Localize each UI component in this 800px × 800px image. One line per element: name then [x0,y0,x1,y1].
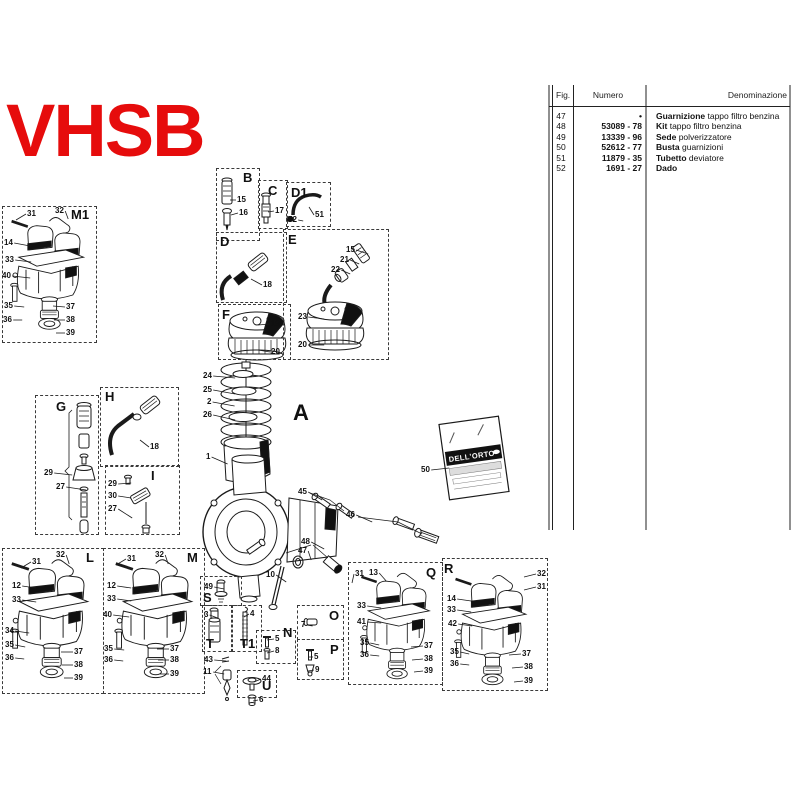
leader-line [213,415,235,420]
part-number-12: 12 [12,582,21,590]
section-letter-M1: M1 [71,208,89,221]
leader-line [524,587,536,590]
leader-line [258,324,270,325]
part-number-29: 29 [44,469,53,477]
leader-line [66,555,69,564]
table-row-fig: 49 [549,133,573,142]
part-number-24: 24 [203,372,212,380]
leader-line [367,622,381,623]
part-number-31: 31 [537,583,546,591]
leader-line [114,649,124,650]
leader-line [15,645,25,647]
part-number-23: 23 [298,313,307,321]
part-number-38: 38 [524,663,533,671]
leader-line [309,207,314,215]
leader-line [276,575,286,582]
part-number-18: 18 [150,443,159,451]
part-number-37: 37 [424,642,433,650]
part-number-38: 38 [424,655,433,663]
leader-line [258,350,270,352]
section-letter-P: P [330,643,339,656]
part-number-45: 45 [298,488,307,496]
leader-line [524,574,536,577]
part-number-36: 36 [5,654,14,662]
table-row-numero: 52612 - 77 [574,143,642,152]
leader-line [414,671,423,672]
leader-line [379,573,386,581]
leader-line [113,615,129,617]
section-letter-L: L [86,551,94,564]
part-number-16: 16 [239,209,248,217]
table-row-fig: 47 [549,112,573,121]
leader-line [15,631,29,633]
part-number-33: 33 [447,606,456,614]
part-number-25: 25 [203,386,212,394]
part-number-1: 1 [206,453,210,461]
section-letter-B: B [243,171,252,184]
table-row-fig: 50 [549,143,573,152]
part-number-26: 26 [203,411,212,419]
leader-line [117,586,131,588]
leader-line [457,599,471,601]
section-letter-A: A [293,402,310,424]
section-letter-E: E [288,233,297,246]
part-number-17: 17 [275,207,284,215]
leader-line [367,606,381,608]
part-number-31: 31 [27,210,36,218]
part-number-31: 31 [127,555,136,563]
section-letter-M: M [187,551,198,564]
part-number-13: 13 [369,569,378,577]
leader-line [253,700,258,701]
part-number-27: 27 [56,483,65,491]
table-row-denominazione: Kit tappo filtro benzina [656,122,796,131]
part-number-33: 33 [5,256,14,264]
leader-line [311,542,324,549]
part-number-37: 37 [74,648,83,656]
part-number-43: 43 [204,656,213,664]
table-row-denominazione: Dado [656,164,796,173]
part-number-47: 47 [298,547,307,555]
leader-line [460,652,469,654]
section-letter-R: R [444,562,453,575]
leader-line [412,659,423,660]
den-bold: Dado [656,163,677,173]
section-letter-C: C [268,184,277,197]
leader-line [370,655,379,656]
leader-line [308,551,311,560]
leader-line [231,213,238,215]
part-number-38: 38 [170,656,179,664]
leader-line [411,646,423,647]
leader-line [268,211,274,212]
part-number-18: 18 [263,281,272,289]
leader-line [370,643,379,645]
part-number-20: 20 [271,348,280,356]
part-number-21: 21 [340,256,349,264]
section-letter-S: S [203,591,212,604]
part-number-35: 35 [5,641,14,649]
part-number-27: 27 [108,505,117,513]
part-number-33: 33 [107,595,116,603]
leader-line [251,279,262,285]
section-letter-Q: Q [426,566,436,579]
part-number-20: 20 [298,341,307,349]
section-letter-H: H [105,390,114,403]
part-number-36: 36 [104,656,113,664]
section-letter-T: T [206,637,214,650]
table-row-fig: 51 [549,154,573,163]
part-number-39: 39 [524,677,533,685]
leader-line [356,515,372,522]
part-number-31: 31 [355,570,364,578]
part-number-49: 49 [204,583,213,591]
part-number-5: 5 [275,635,279,643]
section-letter-I: I [151,469,155,482]
part-number-44: 44 [262,675,271,683]
part-number-6: 6 [259,696,263,704]
leader-line [22,586,36,588]
part-number-32: 32 [155,551,164,559]
leader-line [114,660,123,661]
leader-line [213,390,235,394]
table-row-denominazione: Busta guarnizioni [656,143,796,152]
table-header-fig: Fig. [556,91,570,100]
section-letter-G: G [56,400,66,413]
part-number-36: 36 [450,660,459,668]
table-row-numero: • [574,112,642,121]
part-number-37: 37 [170,645,179,653]
part-number-32: 32 [537,570,546,578]
part-number-50: 50 [421,466,430,474]
part-number-3: 3 [204,611,208,619]
leader-line [308,317,324,319]
part-number-38: 38 [74,661,83,669]
leader-line [512,667,523,668]
leader-line [254,679,261,682]
part-number-31: 31 [32,558,41,566]
section-letter-O: O [329,609,339,622]
leader-line [14,306,24,307]
leader-line [457,610,471,612]
table-row-denominazione: Sede polverizzatore [656,133,796,142]
part-number-35: 35 [360,639,369,647]
part-number-29: 29 [108,480,117,488]
part-number-8: 8 [275,647,279,655]
part-number-33: 33 [357,602,366,610]
leader-line [307,625,313,626]
part-number-9: 9 [315,666,319,674]
leader-line [116,559,126,565]
leader-line [267,639,274,640]
part-number-36: 36 [3,316,12,324]
part-number-40: 40 [103,611,112,619]
section-letter-T1: T1 [240,637,255,650]
part-number-41: 41 [357,618,366,626]
part-number-39: 39 [170,670,179,678]
part-number-14: 14 [447,595,456,603]
leader-line [14,243,30,246]
parts-diagram-page: DELL'ORTO VHSB Fig. Numero Denominazione… [0,0,800,800]
table-row-numero: 13339 - 96 [574,133,642,142]
leader-line [214,587,224,589]
part-number-35: 35 [450,648,459,656]
table-row-fig: 52 [549,164,573,173]
section-letter-N: N [283,626,292,639]
leader-line [53,306,65,307]
part-number-30: 30 [108,492,117,500]
leader-line [213,376,235,378]
leader-line [214,660,226,661]
leader-line [244,614,249,617]
part-number-22: 22 [331,266,340,274]
page-title: VHSB [6,94,204,168]
leader-line [509,654,521,655]
leader-line [352,574,354,583]
table-row-fig: 48 [549,122,573,131]
leader-line [12,276,30,278]
leader-line [210,615,218,618]
den-bold: Tubetto [656,153,687,163]
leader-line [65,211,68,219]
part-number-37: 37 [522,650,531,658]
part-number-11: 11 [203,668,211,676]
part-number-5: 5 [314,653,318,661]
table-row-denominazione: Tubetto deviatore [656,154,796,163]
den-bold: Busta [656,142,680,152]
leader-line [356,250,368,254]
leader-line [460,664,469,665]
part-number-10: 10 [266,571,275,579]
part-number-51: 51 [315,211,324,219]
leader-line [341,270,350,274]
leader-line [15,658,24,659]
den-bold: Kit [656,121,667,131]
part-number-7: 7 [301,621,305,629]
part-number-35: 35 [4,302,13,310]
part-number-12: 12 [107,582,116,590]
part-number-37: 37 [66,303,75,311]
table-header-numero: Numero [574,91,642,100]
part-number-36: 36 [360,651,369,659]
part-number-46: 46 [346,511,355,519]
part-number-34: 34 [5,627,14,635]
section-letter-D1: D1 [291,186,308,199]
part-number-14: 14 [4,239,13,247]
part-number-39: 39 [66,329,75,337]
leader-line [212,457,228,464]
leader-line [350,260,359,264]
part-number-52: 52 [288,216,297,224]
part-number-40: 40 [2,272,11,280]
part-number-19: 19 [271,320,280,328]
leader-line [15,260,31,262]
part-number-35: 35 [104,645,113,653]
part-number-15: 15 [346,246,355,254]
leader-line [514,681,523,682]
leader-line [118,483,131,484]
leader-line [267,651,274,653]
part-number-33: 33 [12,596,21,604]
section-letter-F: F [222,308,230,321]
leader-line [213,672,224,674]
den-bold: Sede [656,132,676,142]
part-number-2: 2 [207,398,211,406]
part-number-38: 38 [66,316,75,324]
part-number-32: 32 [56,551,65,559]
leader-line [165,555,168,564]
table-row-numero: 1691 - 27 [574,164,642,173]
leader-line [118,509,132,518]
leader-line [22,600,36,602]
leader-line [431,468,449,470]
section-letter-D: D [220,235,229,248]
part-number-39: 39 [424,667,433,675]
leader-line [308,492,322,500]
table-row-numero: 11879 - 35 [574,154,642,163]
leader-line [21,562,31,568]
leader-line [117,599,131,601]
part-number-4: 4 [250,610,254,618]
part-number-32: 32 [55,207,64,215]
part-number-15: 15 [237,196,246,204]
leader-line [66,487,86,490]
leader-line [118,496,131,498]
leader-line [308,670,314,671]
table-row-denominazione: Guarnizione tappo filtro benzina [656,112,796,121]
part-number-48: 48 [301,538,310,546]
leader-line [54,473,72,475]
leader-line [298,220,303,221]
part-number-39: 39 [74,674,83,682]
table-row-numero: 53089 - 78 [574,122,642,131]
den-bold: Guarnizione [656,111,705,121]
table-header-denominazione: Denominazione [650,91,787,100]
leader-line [213,402,235,406]
leader-line [16,214,26,220]
part-number-42: 42 [448,620,457,628]
leader-line [140,440,149,447]
leader-line [458,624,472,626]
